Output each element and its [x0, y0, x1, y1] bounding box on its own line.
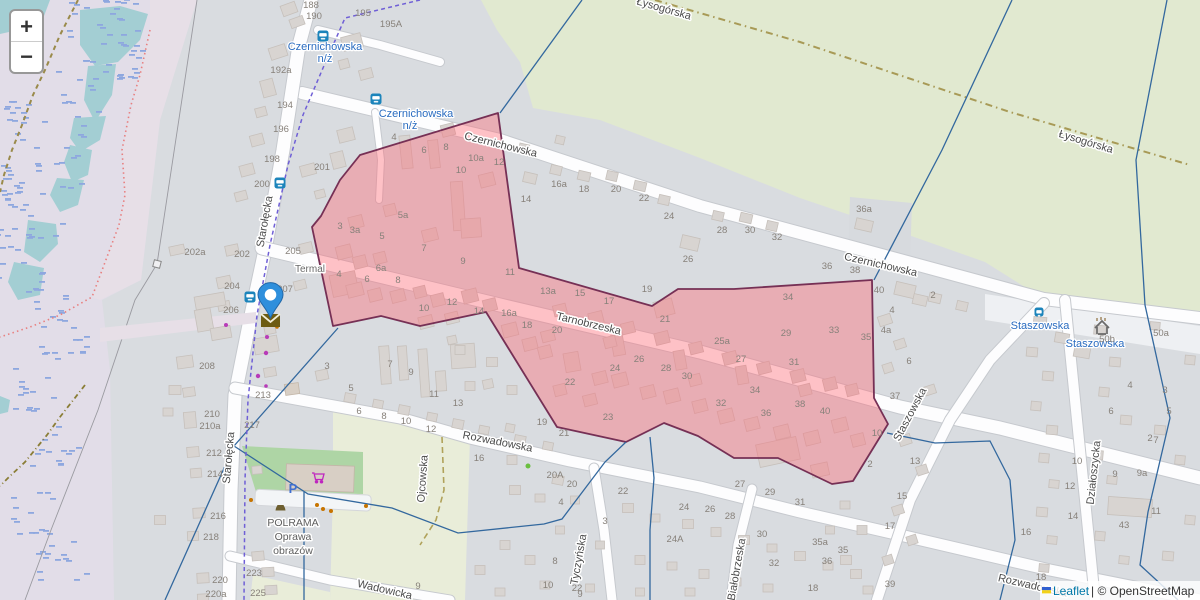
- svg-text:31: 31: [795, 497, 806, 508]
- svg-text:29: 29: [765, 487, 776, 498]
- svg-text:11: 11: [429, 389, 439, 400]
- svg-text:9: 9: [1112, 469, 1117, 480]
- svg-text:23: 23: [603, 412, 614, 423]
- svg-text:14: 14: [521, 194, 532, 205]
- svg-text:3: 3: [1162, 385, 1167, 396]
- svg-text:36: 36: [761, 408, 772, 419]
- svg-text:30: 30: [757, 529, 768, 540]
- svg-text:34: 34: [750, 385, 761, 396]
- svg-text:Leaflet: Leaflet: [1053, 584, 1090, 598]
- svg-text:5: 5: [1166, 406, 1171, 417]
- svg-text:24: 24: [664, 211, 675, 222]
- svg-text:24: 24: [610, 363, 621, 374]
- svg-text:9a: 9a: [1137, 468, 1148, 479]
- svg-text:38: 38: [795, 399, 806, 410]
- svg-text:32: 32: [772, 232, 783, 243]
- svg-text:14: 14: [1068, 511, 1079, 522]
- svg-text:6a: 6a: [376, 263, 387, 274]
- svg-text:12: 12: [426, 424, 437, 435]
- svg-text:24: 24: [679, 502, 690, 513]
- svg-text:11: 11: [1151, 506, 1161, 517]
- svg-text:13a: 13a: [540, 286, 557, 297]
- svg-text:7: 7: [421, 243, 426, 254]
- svg-text:208: 208: [199, 361, 215, 372]
- svg-text:Czernichowska: Czernichowska: [288, 41, 363, 53]
- svg-text:20: 20: [567, 479, 578, 490]
- svg-text:204: 204: [224, 281, 240, 292]
- svg-text:200: 200: [254, 179, 270, 190]
- svg-text:8: 8: [381, 411, 386, 422]
- svg-text:22: 22: [565, 377, 576, 388]
- svg-text:8: 8: [552, 556, 557, 567]
- svg-text:194: 194: [277, 100, 293, 111]
- svg-text:32: 32: [769, 558, 780, 569]
- svg-text:10: 10: [872, 428, 883, 439]
- svg-text:12: 12: [494, 157, 505, 168]
- svg-text:4: 4: [1127, 380, 1132, 391]
- svg-text:3: 3: [324, 361, 329, 372]
- svg-text:20: 20: [611, 184, 622, 195]
- svg-text:13: 13: [910, 456, 921, 467]
- svg-text:9: 9: [408, 367, 413, 378]
- svg-text:195A: 195A: [380, 19, 403, 30]
- svg-text:+: +: [20, 14, 33, 39]
- svg-text:25a: 25a: [714, 336, 731, 347]
- svg-text:35: 35: [861, 332, 872, 343]
- svg-text:9: 9: [577, 589, 582, 600]
- svg-text:212: 212: [206, 448, 222, 459]
- svg-text:22: 22: [639, 193, 650, 204]
- svg-text:Oprawa: Oprawa: [275, 531, 312, 543]
- svg-text:2: 2: [867, 459, 872, 470]
- svg-text:50a: 50a: [1153, 328, 1170, 339]
- svg-text:220: 220: [212, 575, 228, 586]
- svg-text:10: 10: [543, 580, 554, 591]
- svg-text:36: 36: [822, 556, 833, 567]
- svg-text:210: 210: [204, 409, 220, 420]
- svg-text:18: 18: [579, 184, 590, 195]
- svg-text:10: 10: [1072, 456, 1083, 467]
- svg-text:16: 16: [1021, 527, 1032, 538]
- svg-text:30: 30: [745, 225, 756, 236]
- svg-text:38: 38: [850, 265, 861, 276]
- svg-text:Czernichowska: Czernichowska: [379, 108, 454, 120]
- svg-text:210a: 210a: [199, 421, 221, 432]
- svg-text:n/ż: n/ż: [318, 53, 333, 65]
- svg-text:5: 5: [379, 231, 384, 242]
- svg-text:20A: 20A: [547, 470, 565, 481]
- svg-text:5a: 5a: [398, 210, 409, 221]
- svg-text:35a: 35a: [812, 537, 829, 548]
- svg-text:30: 30: [682, 371, 693, 382]
- svg-text:Staszowska: Staszowska: [1011, 320, 1071, 332]
- svg-text:10: 10: [419, 303, 430, 314]
- svg-text:33: 33: [829, 325, 840, 336]
- svg-text:40: 40: [820, 406, 831, 417]
- svg-text:28: 28: [661, 363, 672, 374]
- svg-text:16a: 16a: [551, 179, 568, 190]
- svg-text:223: 223: [246, 568, 262, 579]
- svg-text:26: 26: [634, 354, 645, 365]
- svg-text:4: 4: [558, 497, 563, 508]
- svg-text:31: 31: [789, 357, 800, 368]
- svg-text:18: 18: [522, 320, 533, 331]
- svg-text:11: 11: [505, 267, 515, 278]
- svg-text:7: 7: [387, 359, 392, 370]
- svg-text:| © OpenStreetMap: | © OpenStreetMap: [1091, 584, 1195, 598]
- svg-text:18: 18: [808, 583, 819, 594]
- svg-text:4a: 4a: [881, 325, 892, 336]
- svg-text:17: 17: [604, 296, 615, 307]
- svg-text:20: 20: [552, 325, 563, 336]
- svg-text:15: 15: [897, 491, 908, 502]
- svg-text:218: 218: [203, 532, 219, 543]
- svg-text:195: 195: [355, 8, 371, 19]
- svg-text:21: 21: [660, 314, 671, 325]
- svg-text:192a: 192a: [270, 65, 292, 76]
- svg-text:26: 26: [683, 254, 694, 265]
- svg-text:14: 14: [474, 306, 485, 317]
- svg-text:196: 196: [273, 124, 289, 135]
- svg-text:8: 8: [395, 275, 400, 286]
- svg-text:40: 40: [874, 285, 885, 296]
- svg-text:15: 15: [575, 288, 586, 299]
- svg-text:5: 5: [348, 383, 353, 394]
- svg-text:12: 12: [447, 297, 458, 308]
- svg-text:10: 10: [401, 416, 412, 427]
- svg-text:26: 26: [705, 504, 716, 515]
- svg-text:213: 213: [255, 390, 271, 401]
- svg-text:6: 6: [364, 274, 369, 285]
- svg-text:P: P: [289, 481, 298, 496]
- svg-text:4: 4: [391, 132, 396, 143]
- svg-text:39: 39: [885, 579, 896, 590]
- svg-text:9: 9: [415, 581, 420, 592]
- svg-text:217: 217: [244, 420, 260, 431]
- svg-text:16a: 16a: [501, 308, 518, 319]
- svg-text:29: 29: [781, 328, 792, 339]
- svg-text:37: 37: [890, 391, 901, 402]
- svg-text:36a: 36a: [856, 204, 873, 215]
- svg-text:50b: 50b: [1099, 334, 1115, 345]
- svg-text:35: 35: [838, 545, 849, 556]
- svg-text:27: 27: [736, 354, 747, 365]
- svg-text:36: 36: [822, 261, 833, 272]
- svg-text:28: 28: [717, 225, 728, 236]
- svg-text:201: 201: [314, 162, 330, 173]
- svg-text:19: 19: [642, 284, 653, 295]
- svg-text:202: 202: [234, 249, 250, 260]
- svg-text:24A: 24A: [667, 534, 685, 545]
- svg-text:−: −: [20, 44, 33, 69]
- svg-text:9: 9: [460, 256, 465, 267]
- svg-text:6: 6: [356, 406, 361, 417]
- svg-text:obrazów: obrazów: [273, 545, 313, 557]
- svg-text:3: 3: [602, 516, 607, 527]
- svg-text:4: 4: [336, 269, 341, 280]
- svg-text:7: 7: [1153, 435, 1158, 446]
- svg-text:2: 2: [930, 290, 935, 301]
- svg-text:10: 10: [456, 165, 467, 176]
- svg-text:202a: 202a: [184, 247, 206, 258]
- svg-text:34: 34: [783, 292, 794, 303]
- svg-text:10a: 10a: [468, 153, 485, 164]
- svg-text:21: 21: [559, 428, 570, 439]
- svg-text:43: 43: [1119, 520, 1130, 531]
- svg-text:188: 188: [303, 0, 319, 11]
- svg-text:8: 8: [443, 142, 448, 153]
- svg-text:27: 27: [735, 479, 746, 490]
- svg-text:3a: 3a: [350, 225, 361, 236]
- svg-text:4: 4: [889, 305, 894, 316]
- svg-text:32: 32: [716, 398, 727, 409]
- svg-text:206: 206: [223, 305, 239, 316]
- svg-text:17: 17: [885, 521, 896, 532]
- svg-text:n/ż: n/ż: [403, 120, 418, 132]
- svg-text:13: 13: [453, 398, 464, 409]
- svg-text:POLRAMA: POLRAMA: [267, 517, 318, 529]
- svg-text:216: 216: [210, 511, 226, 522]
- svg-text:6: 6: [1108, 406, 1113, 417]
- svg-text:214: 214: [207, 469, 223, 480]
- svg-text:28: 28: [725, 511, 736, 522]
- svg-text:190: 190: [306, 11, 322, 22]
- svg-text:3: 3: [337, 221, 342, 232]
- svg-text:6: 6: [421, 145, 426, 156]
- svg-text:12: 12: [1065, 481, 1076, 492]
- svg-text:Termal: Termal: [295, 264, 325, 275]
- svg-text:16: 16: [474, 453, 485, 464]
- svg-text:198: 198: [264, 154, 280, 165]
- svg-text:220a: 220a: [205, 589, 227, 600]
- svg-text:Staszowska: Staszowska: [1066, 338, 1126, 350]
- svg-text:6: 6: [906, 356, 911, 367]
- svg-text:19: 19: [537, 417, 548, 428]
- svg-text:225: 225: [250, 588, 266, 599]
- svg-text:22: 22: [618, 486, 629, 497]
- svg-text:2: 2: [1147, 433, 1152, 444]
- svg-text:205: 205: [285, 246, 301, 257]
